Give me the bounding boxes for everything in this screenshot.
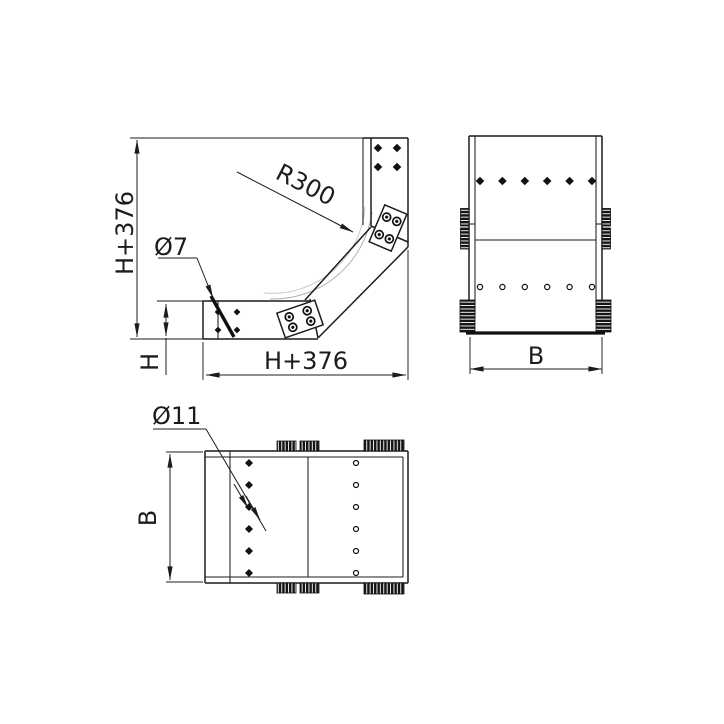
technical-drawing-canvas: H+376 H H+376 R300 Ø7 bbox=[0, 0, 724, 724]
diamond-hole-row-front bbox=[476, 177, 597, 186]
tray-height-label: H bbox=[136, 353, 164, 371]
diamond-hole bbox=[245, 547, 253, 555]
diamond-hole bbox=[393, 163, 402, 172]
diamond-hole bbox=[476, 177, 485, 186]
diamond-hole-column-plan bbox=[245, 459, 253, 577]
bolt-stacks-plan bbox=[277, 440, 404, 594]
round-hole-row-front bbox=[477, 284, 594, 289]
diamond-hole bbox=[393, 144, 402, 153]
diamond-hole bbox=[521, 177, 530, 186]
bottom-hole-diameter-label: Ø11 bbox=[152, 402, 201, 430]
overall-width-label: H+376 bbox=[264, 347, 348, 375]
bend-radius-label: R300 bbox=[271, 158, 339, 211]
front-view: B bbox=[460, 136, 611, 374]
diamond-hole bbox=[234, 309, 241, 316]
diamond-hole bbox=[215, 327, 222, 334]
front-outline bbox=[466, 136, 605, 333]
diamond-hole bbox=[498, 177, 507, 186]
leader-slot-diameter bbox=[158, 258, 213, 298]
round-hole-column-plan bbox=[354, 461, 359, 576]
connector-plate-upper bbox=[369, 205, 407, 251]
diamond-hole bbox=[245, 481, 253, 489]
diamond-hole bbox=[374, 144, 383, 153]
diamond-hole bbox=[245, 525, 253, 533]
diamond-hole bbox=[234, 327, 241, 334]
diamond-hole bbox=[374, 163, 383, 172]
diamond-hole bbox=[245, 569, 253, 577]
diamond-hole-grid-top bbox=[374, 144, 402, 172]
width-label-front: B bbox=[528, 342, 544, 370]
overall-height-label: H+376 bbox=[111, 191, 139, 275]
dimension-width-plan bbox=[166, 452, 203, 582]
slotted-hole bbox=[211, 296, 234, 337]
plan-view: Ø11 B bbox=[134, 402, 408, 594]
diamond-hole bbox=[245, 459, 253, 467]
bolt-stacks-front bbox=[460, 209, 611, 333]
radius-arc bbox=[270, 212, 372, 299]
plan-outline bbox=[205, 451, 408, 583]
diamond-hole bbox=[543, 177, 552, 186]
diamond-hole bbox=[588, 177, 597, 186]
side-view: H+376 H H+376 R300 Ø7 bbox=[111, 138, 408, 380]
slot-diameter-label: Ø7 bbox=[154, 233, 188, 261]
width-label-plan: B bbox=[134, 510, 162, 526]
diamond-hole bbox=[565, 177, 574, 186]
